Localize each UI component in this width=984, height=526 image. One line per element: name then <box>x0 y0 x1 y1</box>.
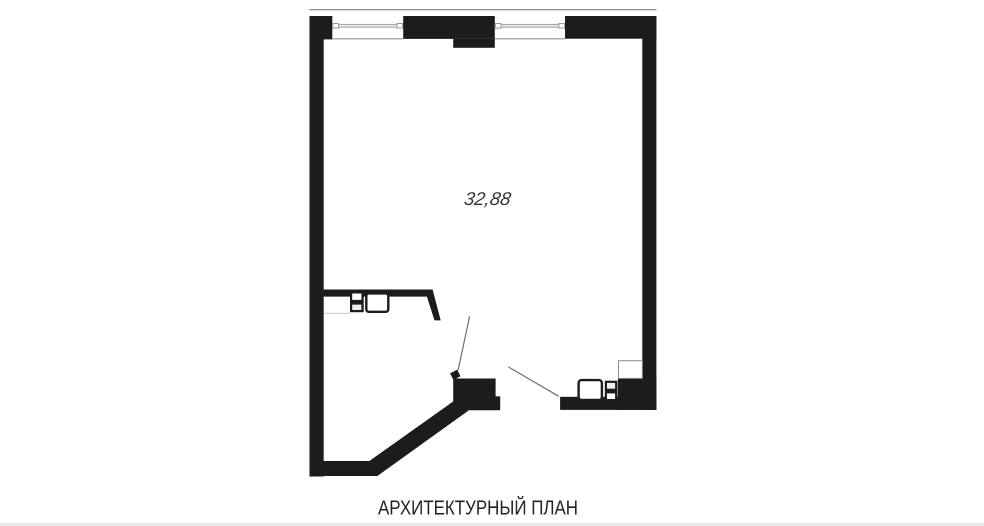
svg-text:АРХИТЕКТУРНЫЙ ПЛАН: АРХИТЕКТУРНЫЙ ПЛАН <box>378 496 578 520</box>
svg-text:32,88: 32,88 <box>463 188 514 209</box>
